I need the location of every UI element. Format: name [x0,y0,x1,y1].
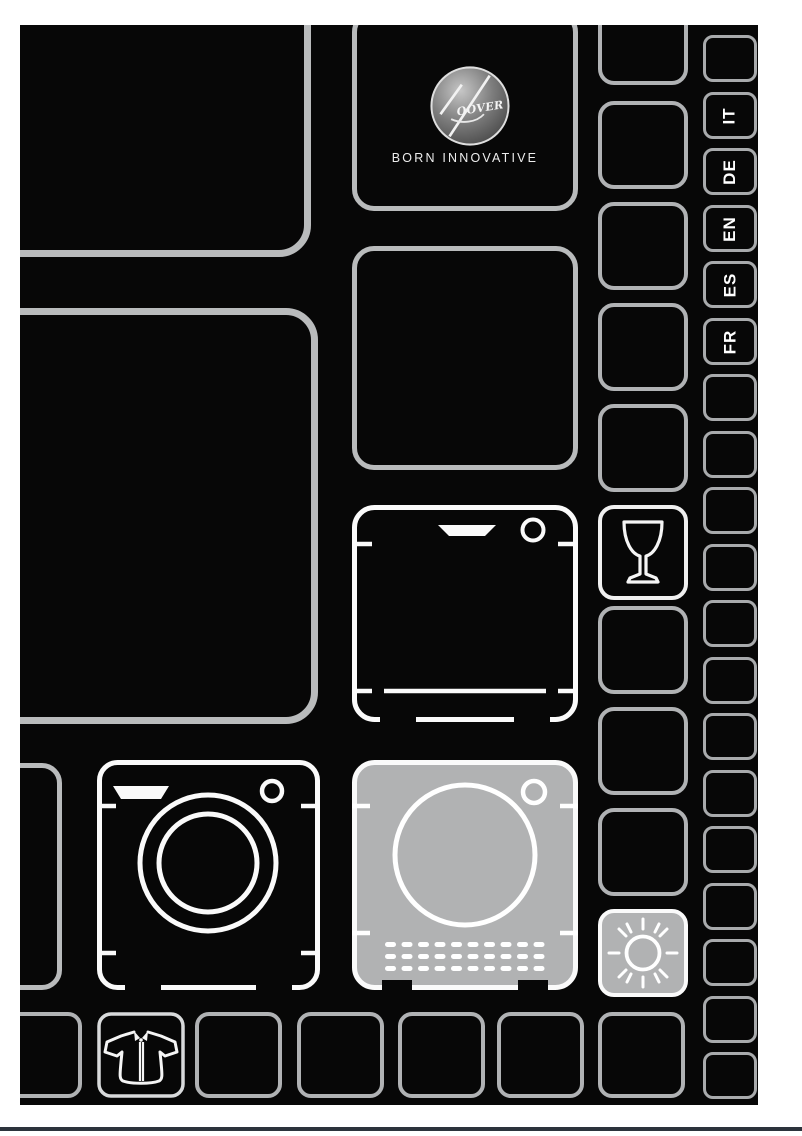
index-cell-empty [703,487,757,534]
language-tab-it: IT [703,92,757,139]
grid-cell-empty [195,1012,282,1098]
dishwasher-cell [352,505,578,722]
index-cell-empty [703,657,757,704]
language-label: DE [720,159,740,185]
shirt-cell [97,1012,185,1098]
grid-cell-empty-mid [352,246,578,470]
page-bottom-rule [0,1127,802,1131]
manual-cover-page: OOVER BORN INNOVATIVE [0,0,802,1136]
tumble-dryer-icon [352,760,578,990]
brand-cell: OOVER BORN INNOVATIVE [352,25,578,211]
washing-machine-icon [97,760,320,990]
index-cell-empty [703,713,757,760]
grid-cell-empty [598,25,688,85]
grid-cell-empty [398,1012,485,1098]
washing-machine-cell [97,760,320,990]
dishwasher-icon [352,505,578,722]
index-cell-empty [703,826,757,873]
index-cell-empty [703,374,757,421]
index-cell-empty [703,770,757,817]
index-cell-empty [703,544,757,591]
sun-icon [598,909,688,997]
index-cell-empty [703,939,757,986]
language-tab-en: EN [703,205,757,252]
index-cell-empty [703,996,757,1043]
grid-cell-empty [497,1012,584,1098]
index-cell-empty [703,35,757,82]
grid-cell-partial-left [20,763,62,990]
wine-glass-cell [598,505,688,600]
grid-cell-empty [598,202,688,290]
language-label: ES [720,272,740,297]
grid-cell-partial-bottom-left [20,1012,82,1098]
language-tab-fr: FR [703,318,757,365]
index-cell-empty [703,883,757,930]
shirt-icon [97,1012,185,1098]
language-tab-es: ES [703,261,757,308]
grid-cell-empty [598,303,688,391]
index-cell-empty [703,600,757,647]
index-cell-empty [703,1052,757,1099]
wine-glass-icon [598,505,688,600]
grid-cell-empty [598,1012,685,1098]
grid-cell-empty [598,606,688,694]
sun-cell [598,909,688,997]
grid-cell-empty [598,808,688,896]
hoover-logo: OOVER [429,65,511,147]
language-tab-de: DE [703,148,757,195]
grid-cell-empty [598,707,688,795]
brand-tagline: BORN INNOVATIVE [357,151,573,165]
grid-cell-empty [297,1012,384,1098]
cover-grid: OOVER BORN INNOVATIVE [20,25,758,1105]
grid-cell-large-mid-left [20,308,318,724]
grid-cell-empty [598,404,688,492]
language-label: EN [720,216,740,242]
language-label: FR [720,329,740,354]
grid-cell-large-top-left [20,25,311,257]
grid-cell-empty [598,101,688,189]
tumble-dryer-cell [352,760,578,990]
language-label: IT [720,107,740,124]
index-cell-empty [703,431,757,478]
